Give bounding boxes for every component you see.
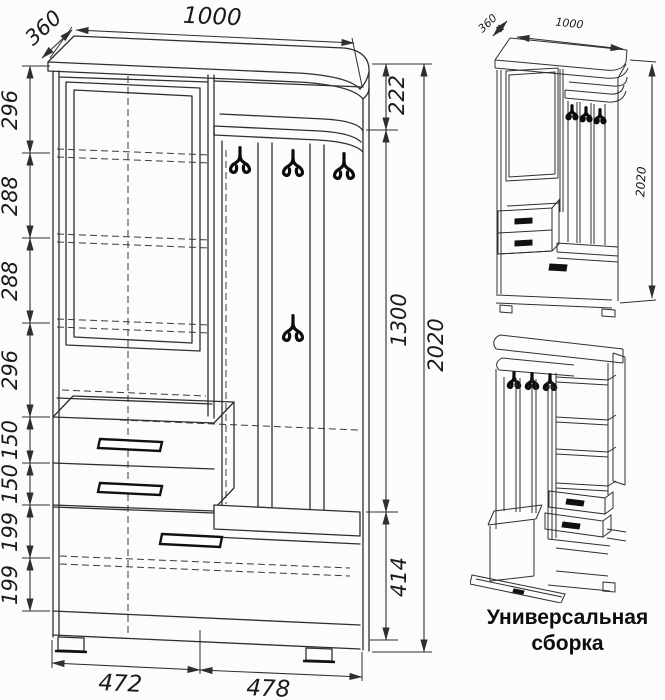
iso2-open-drawers (545, 491, 613, 537)
carcass-sides (53, 71, 369, 651)
iso-dimensions: 1000 360 2020 (476, 12, 656, 303)
hook-panel-slats (222, 141, 324, 511)
coat-hook-icon (581, 108, 591, 121)
drawer-handle (160, 534, 222, 547)
iso-view-universal (470, 333, 665, 603)
drawer-handle (515, 240, 532, 246)
iso-dim-height: 2020 (633, 166, 649, 198)
dim-left-0: 296 (0, 90, 22, 130)
dim-top-width: 1000 (182, 3, 242, 32)
dim-right-0: 222 (385, 75, 409, 115)
dim-left-2: 288 (0, 261, 22, 301)
hook-panel-shelf (214, 114, 363, 152)
dim-left-7: 199 (0, 565, 22, 605)
drawer-handle (515, 218, 532, 224)
dim-left-6: 199 (0, 512, 22, 552)
iso2-canopy (494, 335, 623, 376)
coat-hook-icon (335, 154, 354, 179)
dim-right-2: 414 (387, 557, 411, 597)
dim-left-4: 150 (0, 420, 22, 460)
iso-view-assembled: 1000 360 2020 (470, 0, 665, 335)
technical-drawing-page: 1000 360 296 288 288 296 150 150 199 199… (0, 0, 665, 700)
iso-slats (568, 101, 605, 245)
drawer-unit (53, 396, 234, 511)
drawer-handle (566, 499, 584, 506)
coat-hook-icon (284, 151, 303, 176)
front-view-drawing: 1000 360 296 288 288 296 150 150 199 199… (0, 0, 470, 700)
iso-drawers (498, 200, 559, 254)
coat-hook-icon (544, 375, 555, 390)
iso2-slats (496, 369, 552, 540)
dim-bottom-1: 478 (246, 675, 291, 700)
drawer-handle (549, 264, 567, 271)
dim-top-depth: 360 (20, 5, 66, 50)
coat-hook-icon (231, 148, 250, 173)
dim-right-1: 1300 (387, 293, 411, 346)
iso2-bench-frame (488, 505, 626, 592)
dim-overall-height: 2020 (424, 318, 448, 371)
coat-hook-icon (284, 316, 303, 341)
drawer-handle (562, 522, 580, 529)
iso-dim-depth: 360 (476, 12, 500, 36)
dim-bottom-0: 472 (98, 670, 143, 698)
base-feet (55, 637, 335, 662)
iso-bench-bottom (496, 243, 618, 317)
dim-left-3: 296 (0, 350, 22, 390)
assembly-caption: Универсальная сборка (485, 605, 650, 658)
mirror-door (66, 82, 200, 351)
drawer-handle (98, 439, 162, 451)
dim-left-5: 150 (0, 464, 22, 504)
coat-hook-icon (508, 373, 519, 388)
dim-left-1: 288 (0, 176, 22, 216)
dimension-labels: 1000 360 296 288 288 296 150 150 199 199… (0, 3, 448, 700)
iso-canopy (495, 38, 628, 78)
dimension-lines (22, 27, 432, 681)
iso2-open-flap (470, 575, 565, 603)
bench-seat (214, 505, 360, 536)
drawer-handle (98, 483, 162, 495)
coat-hook-icon (595, 110, 605, 123)
iso-dim-width: 1000 (555, 16, 584, 32)
coat-hook-icon (567, 106, 577, 119)
iso2-shelf-column (556, 353, 625, 538)
